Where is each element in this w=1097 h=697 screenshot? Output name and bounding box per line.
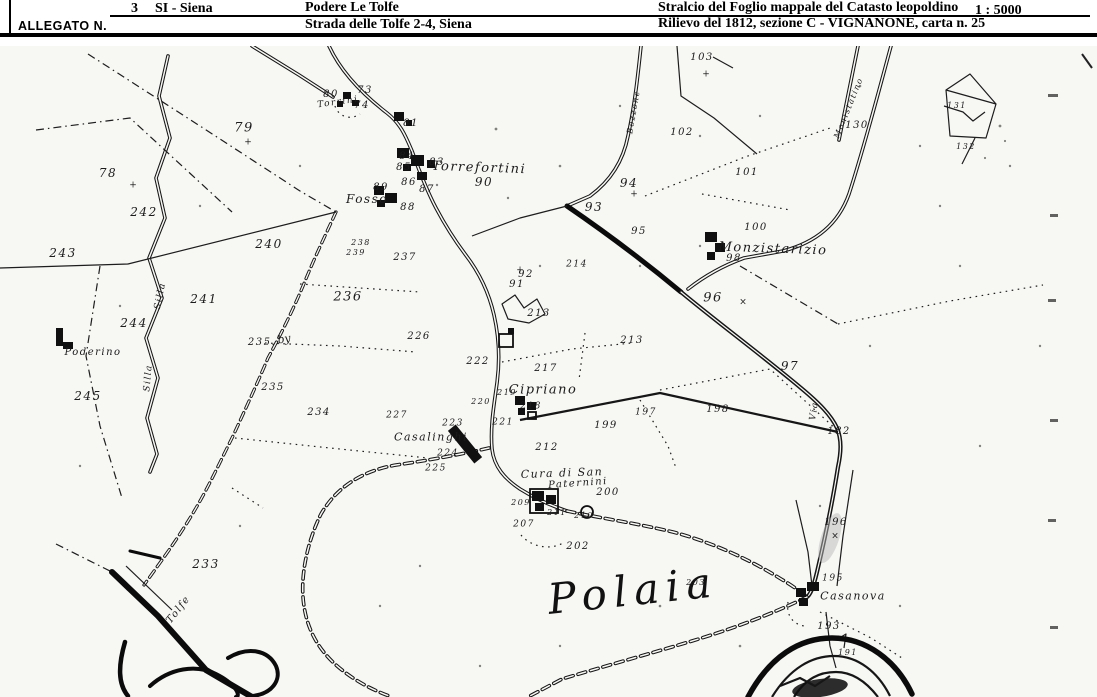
parcel-number: 88	[400, 203, 416, 213]
parcel-number: 93	[585, 201, 603, 213]
parcel-number: 130	[845, 121, 869, 131]
parcel-number: 84	[399, 152, 415, 162]
parcel-number: 213	[527, 309, 551, 319]
parcel-number: 197	[635, 409, 657, 418]
parcel-number: 73	[357, 86, 373, 96]
map-labels: TorriniTorrefortiniFossoPoderinoCipriano…	[0, 46, 1097, 697]
province-label: SI - Siena	[155, 1, 213, 17]
parcel-number: 95	[631, 227, 647, 237]
parcel-number: 238	[351, 239, 371, 247]
scanned-map-page: ALLEGATO N. 3 SI - Siena Podere Le Tolfe…	[0, 0, 1097, 697]
map-scale: 1 : 5000	[975, 3, 1022, 19]
parcel-number: 102	[670, 128, 694, 138]
parcel-number: 196	[824, 518, 848, 528]
map-symbol: +	[702, 71, 710, 80]
document-header: ALLEGATO N. 3 SI - Siena Podere Le Tolfe…	[0, 0, 1097, 46]
parcel-number: 214	[566, 261, 588, 270]
parcel-number: 78	[99, 167, 117, 179]
parcel-number: 224	[437, 450, 459, 459]
parcel-number: 85	[396, 163, 412, 173]
parcel-number: 101	[735, 168, 759, 178]
place-label: Tolfe	[165, 594, 193, 626]
farm-name: Podere Le Tolfe	[305, 0, 399, 16]
parcel-number: 234	[307, 408, 331, 418]
parcel-number: 243	[49, 247, 76, 259]
map-symbol: +	[244, 139, 252, 148]
map-title: Stralcio del Foglio mappale del Catasto …	[658, 0, 958, 16]
parcel-number: 103	[690, 53, 714, 63]
map-symbol: ×	[831, 533, 839, 542]
parcel-number: 209	[511, 499, 531, 507]
parcel-number: 237	[393, 253, 417, 263]
parcel-number: 100	[744, 223, 768, 233]
parcel-number: 211	[547, 509, 567, 517]
map-symbol: +	[516, 267, 524, 276]
parcel-number: 210	[574, 512, 594, 520]
map-symbol: by	[277, 332, 292, 345]
place-label: Fosso	[346, 193, 388, 205]
parcel-number: 200	[596, 488, 620, 498]
header-bottom-rule	[0, 33, 1097, 37]
place-label: Casalinghi	[394, 432, 468, 443]
parcel-number: 86	[401, 178, 417, 188]
parcel-number: 79	[234, 122, 254, 135]
place-label: Casanova	[820, 591, 886, 602]
parcel-number: 96	[703, 292, 723, 305]
parcel-number: 191	[838, 649, 858, 657]
parcel-number: 241	[190, 293, 217, 305]
parcel-number: 193	[817, 622, 841, 632]
parcel-number: 182	[827, 427, 851, 437]
parcel-number: 244	[120, 317, 147, 329]
place-label: Via	[809, 401, 821, 421]
place-label: Cipriano	[509, 384, 578, 397]
cadastral-map: TorriniTorrefortiniFossoPoderinoCipriano…	[0, 46, 1097, 697]
parcel-number: 221	[492, 419, 514, 428]
map-symbol: +	[630, 191, 638, 200]
parcel-number: 245	[74, 390, 101, 402]
parcel-number: 223	[442, 420, 464, 429]
map-symbol: ×	[739, 299, 747, 308]
parcel-number: 220	[471, 398, 491, 406]
parcel-number: 80	[323, 90, 339, 100]
parcel-number: 199	[594, 421, 618, 431]
header-left-rule	[9, 0, 11, 34]
parcel-number: 91	[509, 280, 525, 290]
parcel-number: 225	[425, 465, 447, 474]
parcel-number: 202	[566, 542, 590, 552]
parcel-number: 218	[520, 403, 542, 412]
place-label: Poderino	[64, 348, 121, 358]
parcel-number: 207	[513, 521, 535, 530]
allegato-number: 3	[131, 1, 138, 17]
parcel-number: 213	[620, 336, 644, 346]
parcel-number: 226	[407, 332, 431, 342]
parcel-number: 198	[706, 405, 730, 415]
parcel-number: 212	[535, 443, 559, 453]
parcel-number: 131	[947, 102, 967, 110]
parcel-number: 240	[255, 238, 282, 250]
place-label: Silla	[143, 364, 154, 392]
place-label: Torrefortini	[432, 160, 527, 176]
parcel-number: 98	[726, 254, 742, 264]
allegato-label: ALLEGATO N.	[18, 19, 107, 33]
parcel-number: 94	[620, 177, 638, 189]
parcel-number: 242	[130, 206, 157, 218]
parcel-number: 235.	[248, 338, 276, 348]
place-label: Polaia	[546, 561, 720, 621]
parcel-number: 236	[333, 291, 362, 304]
place-label: Silla	[154, 282, 169, 311]
parcel-number: 81	[403, 119, 419, 129]
parcel-number: 90	[475, 176, 493, 188]
parcel-number: 89	[373, 183, 389, 193]
parcel-number: 239	[346, 249, 366, 257]
parcel-number: 227	[386, 412, 408, 421]
parcel-number: 222	[466, 357, 490, 367]
place-label: Bozzone	[626, 89, 642, 134]
parcel-number: 83	[429, 158, 445, 168]
parcel-number: 219	[497, 389, 517, 397]
parcel-number: 195	[822, 575, 844, 584]
parcel-number: 203	[686, 579, 706, 587]
parcel-number: 132	[956, 143, 976, 151]
parcel-number: 233	[192, 558, 219, 570]
parcel-number: 235	[261, 383, 285, 393]
parcel-number: 97	[781, 360, 799, 372]
parcel-number: 217	[534, 364, 558, 374]
parcel-number: 87	[419, 185, 435, 195]
farm-address: Strada delle Tolfe 2-4, Siena	[305, 17, 472, 33]
parcel-number: 74	[354, 101, 370, 111]
map-subtitle: Rilievo del 1812, sezione C - VIGNANONE,…	[658, 16, 985, 32]
map-symbol: +	[129, 182, 137, 191]
